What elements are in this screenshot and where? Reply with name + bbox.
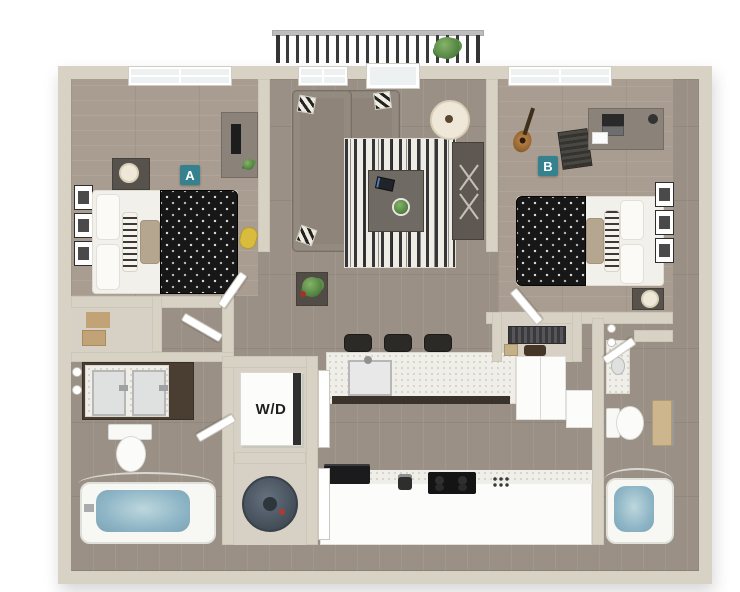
burner bbox=[458, 484, 467, 491]
art-print bbox=[78, 247, 88, 260]
bedroom-a-label: A bbox=[180, 165, 200, 185]
window-pane bbox=[561, 69, 609, 75]
window-pane bbox=[561, 77, 609, 83]
utensil-crock bbox=[492, 476, 510, 488]
refrigerator bbox=[516, 356, 566, 420]
laptop-keyboard bbox=[602, 114, 624, 126]
notebook bbox=[592, 132, 608, 144]
accent-pillow bbox=[586, 218, 604, 264]
monitor bbox=[231, 124, 241, 154]
desk-plant bbox=[243, 159, 254, 170]
window-pane bbox=[301, 69, 322, 75]
wall bbox=[71, 296, 221, 308]
art-print bbox=[659, 188, 669, 201]
wall bbox=[152, 296, 162, 352]
bar-stool bbox=[424, 334, 452, 352]
polka-dot-duvet bbox=[516, 196, 586, 286]
accent-pillow bbox=[297, 95, 317, 115]
washer-dryer-label: W/D bbox=[256, 401, 287, 418]
kitchen-sink bbox=[348, 360, 392, 396]
window-pane bbox=[511, 77, 559, 83]
polka-dot-duvet bbox=[160, 190, 238, 294]
art-print bbox=[659, 244, 669, 257]
building-outline: W/D bbox=[58, 66, 712, 584]
window-living-room bbox=[298, 66, 348, 86]
bar-stool bbox=[344, 334, 372, 352]
door-laundry-closet bbox=[318, 370, 330, 448]
console-x-decor bbox=[453, 143, 485, 241]
tub-faucet bbox=[84, 504, 94, 512]
coffee-table-plant bbox=[394, 200, 408, 214]
wall-art-frame bbox=[655, 182, 674, 207]
art-print bbox=[659, 216, 669, 229]
linen-towels bbox=[86, 312, 110, 328]
closet-bag bbox=[524, 345, 546, 356]
window-bedroom-b bbox=[508, 66, 612, 86]
wall bbox=[540, 312, 673, 324]
wall bbox=[71, 352, 234, 362]
window-pane bbox=[181, 77, 229, 83]
pillow bbox=[620, 200, 644, 240]
door-glass-pane bbox=[370, 67, 416, 85]
wall-art-frame bbox=[655, 210, 674, 235]
window-pane bbox=[324, 77, 345, 83]
washer-door-edge bbox=[293, 373, 301, 445]
toilet bbox=[616, 406, 644, 440]
wall bbox=[486, 79, 498, 252]
sink bbox=[132, 370, 166, 416]
sink bbox=[92, 370, 126, 416]
kitchen-faucet bbox=[364, 356, 372, 364]
wall bbox=[634, 330, 673, 342]
floor-plan-canvas: W/D bbox=[0, 0, 740, 592]
lumbar-pillow bbox=[122, 212, 138, 272]
lumbar-pillow bbox=[604, 210, 620, 272]
accent-pillow bbox=[140, 220, 160, 264]
water-heater-cap bbox=[263, 497, 277, 511]
balcony-post-left bbox=[276, 35, 280, 63]
balcony-door bbox=[366, 63, 420, 89]
pillow bbox=[620, 244, 644, 284]
toilet-paper-holder bbox=[72, 385, 82, 395]
burner bbox=[435, 484, 444, 491]
faucet bbox=[159, 385, 168, 391]
pillow bbox=[96, 194, 120, 240]
desk-lamp bbox=[648, 114, 658, 124]
pillow bbox=[96, 244, 120, 290]
balcony-post-right bbox=[476, 35, 480, 63]
table-lamp bbox=[641, 290, 659, 308]
window-pane bbox=[181, 69, 229, 75]
towel-bar bbox=[652, 400, 672, 446]
door-utility-closet bbox=[318, 468, 330, 540]
toilet-paper-holder bbox=[72, 367, 82, 377]
faucet bbox=[119, 385, 128, 391]
microwave bbox=[324, 464, 370, 484]
red-flower bbox=[300, 291, 306, 297]
window-pane bbox=[324, 69, 345, 75]
stacked-washer-dryer: W/D bbox=[240, 372, 302, 446]
accent-pillow bbox=[373, 91, 392, 110]
art-print bbox=[78, 219, 88, 232]
wall bbox=[572, 312, 582, 362]
bar-stool bbox=[384, 334, 412, 352]
bedroom-b-label: B bbox=[538, 156, 558, 176]
wall-art-frame bbox=[655, 238, 674, 263]
wall bbox=[306, 356, 318, 545]
fridge-door-split bbox=[540, 356, 541, 420]
bathtub-water bbox=[614, 486, 654, 532]
bathtub-water bbox=[96, 490, 190, 532]
window-pane bbox=[131, 69, 179, 75]
floor-lamp-finial bbox=[445, 115, 453, 123]
cooktop bbox=[428, 472, 476, 494]
wall bbox=[492, 312, 502, 362]
wall-art-frame bbox=[74, 241, 93, 266]
door-closet-a bbox=[181, 313, 224, 343]
wall bbox=[234, 452, 306, 464]
table-lamp bbox=[119, 163, 139, 183]
wall-art-frame bbox=[74, 185, 93, 210]
wall bbox=[258, 79, 270, 252]
toiletry bbox=[607, 324, 616, 333]
wall bbox=[592, 318, 604, 545]
coffee-maker bbox=[398, 474, 412, 490]
closet-shelf-box bbox=[504, 344, 518, 356]
island-cabinet-base bbox=[332, 396, 510, 404]
window-pane bbox=[131, 77, 179, 83]
toilet bbox=[116, 436, 146, 472]
wall bbox=[222, 356, 318, 368]
toiletry bbox=[607, 338, 616, 347]
balcony-plant bbox=[434, 37, 460, 59]
linen-towels bbox=[82, 330, 106, 346]
window-pane bbox=[511, 69, 559, 75]
hanging-clothes bbox=[508, 326, 566, 344]
window-pane bbox=[301, 77, 322, 83]
guitar-neck bbox=[523, 108, 535, 136]
media-console bbox=[452, 142, 484, 240]
wall-art-frame bbox=[74, 213, 93, 238]
window-bedroom-a bbox=[128, 66, 232, 86]
heater-valve bbox=[279, 509, 285, 515]
art-print bbox=[78, 191, 88, 204]
